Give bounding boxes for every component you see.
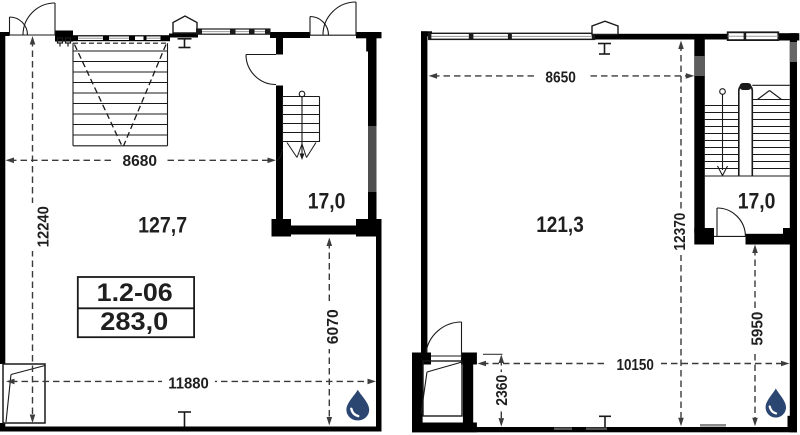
svg-text:127,7: 127,7: [138, 212, 187, 237]
svg-text:8680: 8680: [122, 153, 157, 170]
svg-text:10150: 10150: [616, 357, 654, 374]
svg-text:8650: 8650: [545, 70, 576, 87]
svg-text:6070: 6070: [325, 309, 342, 344]
svg-text:2360: 2360: [494, 375, 511, 406]
svg-text:5950: 5950: [750, 312, 767, 346]
svg-text:17,0: 17,0: [308, 189, 346, 214]
svg-text:121,3: 121,3: [536, 212, 584, 237]
svg-text:12370: 12370: [672, 213, 689, 251]
svg-text:12240: 12240: [36, 206, 53, 247]
svg-text:283,0: 283,0: [100, 308, 168, 336]
svg-text:17,0: 17,0: [738, 189, 776, 214]
svg-text:1.2-06: 1.2-06: [97, 279, 173, 307]
svg-text:11880: 11880: [168, 375, 209, 392]
